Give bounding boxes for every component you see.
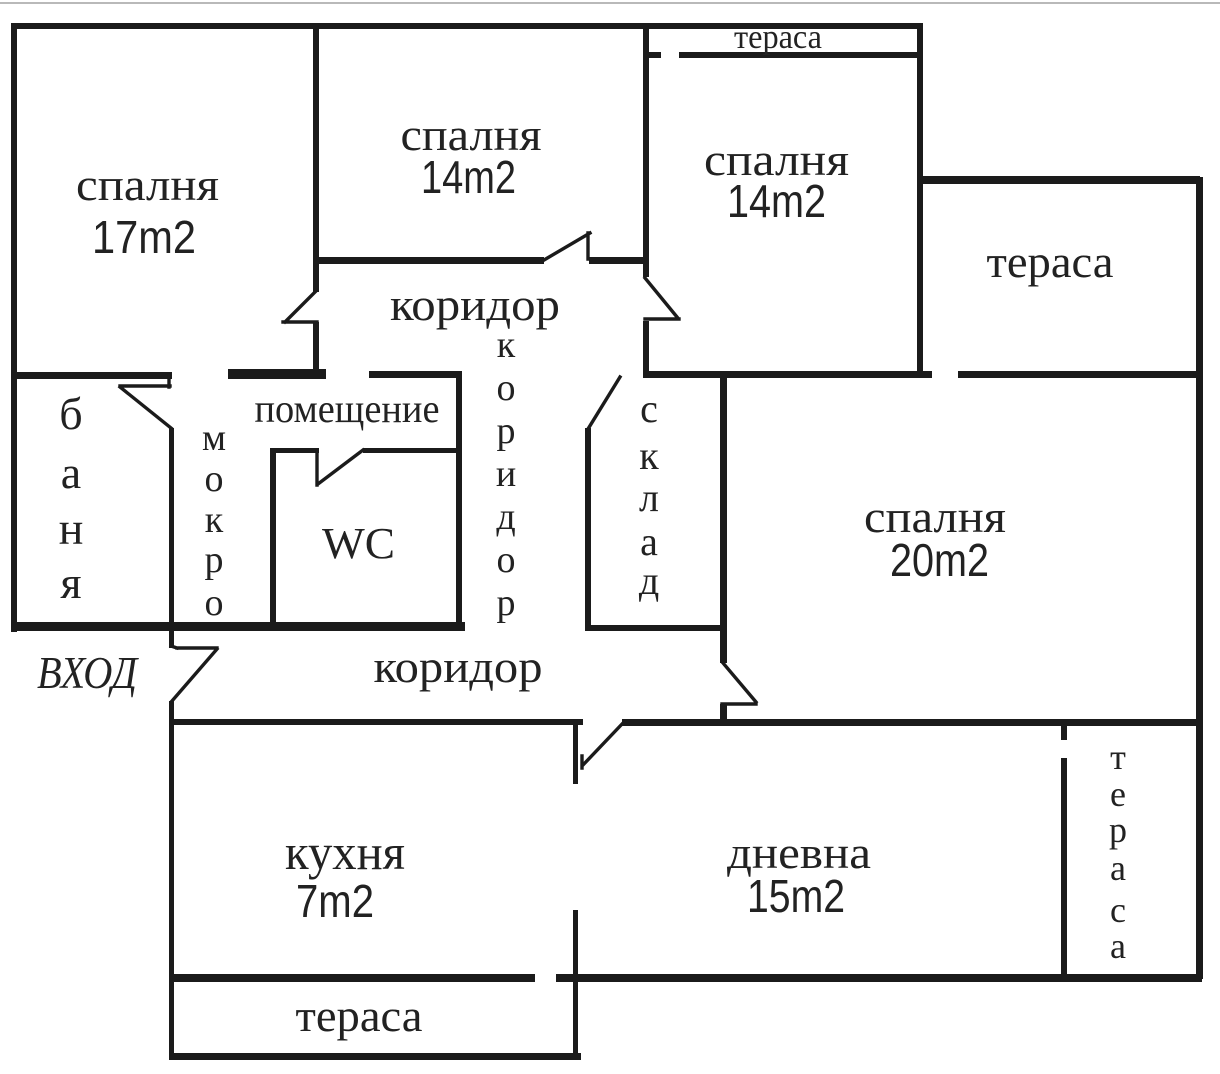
svg-text:н: н — [59, 503, 84, 554]
svg-text:а: а — [61, 447, 81, 498]
svg-text:о: о — [497, 367, 516, 409]
svg-text:е: е — [1110, 774, 1126, 814]
svg-text:спалня: спалня — [76, 159, 219, 210]
svg-text:15m2: 15m2 — [747, 870, 845, 922]
svg-text:WC: WC — [322, 519, 395, 568]
svg-text:к: к — [497, 324, 516, 366]
svg-text:о: о — [205, 582, 224, 624]
svg-text:т: т — [1110, 737, 1126, 777]
svg-text:м: м — [202, 417, 226, 459]
svg-text:тераса: тераса — [734, 19, 822, 56]
svg-text:20m2: 20m2 — [890, 534, 989, 586]
svg-text:р: р — [497, 582, 516, 624]
svg-text:б: б — [59, 388, 82, 439]
svg-text:я: я — [60, 557, 81, 608]
svg-text:к: к — [639, 433, 659, 478]
svg-text:7m2: 7m2 — [296, 875, 374, 927]
svg-text:р: р — [1109, 810, 1127, 850]
svg-text:коридор: коридор — [374, 641, 543, 692]
svg-text:кухня: кухня — [285, 824, 405, 880]
svg-text:и: и — [496, 453, 516, 495]
svg-text:р: р — [497, 410, 516, 452]
svg-text:17m2: 17m2 — [92, 211, 196, 263]
svg-text:с: с — [640, 386, 658, 431]
svg-text:о: о — [205, 458, 224, 500]
svg-text:с: с — [1110, 890, 1126, 930]
svg-text:тераса: тераса — [296, 990, 423, 1041]
svg-text:коридор: коридор — [390, 279, 560, 330]
svg-text:д: д — [639, 558, 659, 603]
svg-text:к: к — [205, 499, 224, 541]
svg-text:а: а — [1110, 926, 1126, 966]
svg-text:л: л — [639, 475, 659, 520]
svg-text:ВХОД: ВХОД — [37, 648, 139, 698]
svg-text:р: р — [205, 539, 224, 581]
svg-text:о: о — [497, 539, 516, 581]
svg-text:помещение: помещение — [255, 386, 440, 431]
svg-text:14m2: 14m2 — [421, 151, 516, 203]
svg-text:а: а — [1110, 848, 1126, 888]
svg-text:тераса: тераса — [987, 236, 1114, 287]
svg-text:д: д — [496, 496, 515, 538]
svg-text:14m2: 14m2 — [727, 175, 826, 227]
